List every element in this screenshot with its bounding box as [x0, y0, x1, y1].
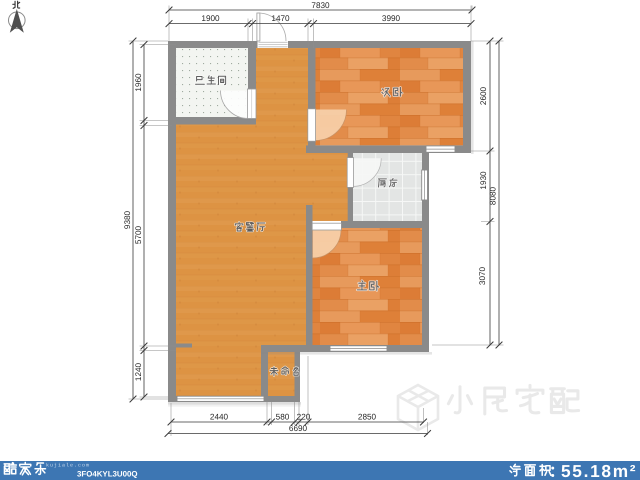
svg-text:1240: 1240 — [134, 362, 143, 381]
svg-text:8080: 8080 — [489, 186, 498, 205]
svg-text:9380: 9380 — [123, 210, 132, 229]
svg-text:7830: 7830 — [311, 1, 330, 10]
svg-text:3990: 3990 — [382, 14, 401, 23]
svg-text:580: 580 — [276, 413, 290, 422]
svg-text:1930: 1930 — [479, 171, 488, 190]
svg-text:kujiale.com: kujiale.com — [46, 462, 90, 468]
svg-text:3FO4KYL3U00Q: 3FO4KYL3U00Q — [77, 470, 138, 479]
svg-text:2440: 2440 — [210, 413, 229, 422]
svg-text:220: 220 — [297, 413, 311, 422]
svg-text:1960: 1960 — [134, 73, 143, 92]
svg-text:3070: 3070 — [478, 266, 487, 285]
svg-text:2600: 2600 — [479, 86, 488, 105]
svg-text:2850: 2850 — [358, 413, 377, 422]
svg-text:1470: 1470 — [271, 14, 290, 23]
svg-text:55.18m²: 55.18m² — [561, 461, 637, 480]
svg-text:1900: 1900 — [201, 14, 220, 23]
svg-text:6690: 6690 — [289, 424, 308, 433]
svg-text:5700: 5700 — [134, 225, 143, 244]
